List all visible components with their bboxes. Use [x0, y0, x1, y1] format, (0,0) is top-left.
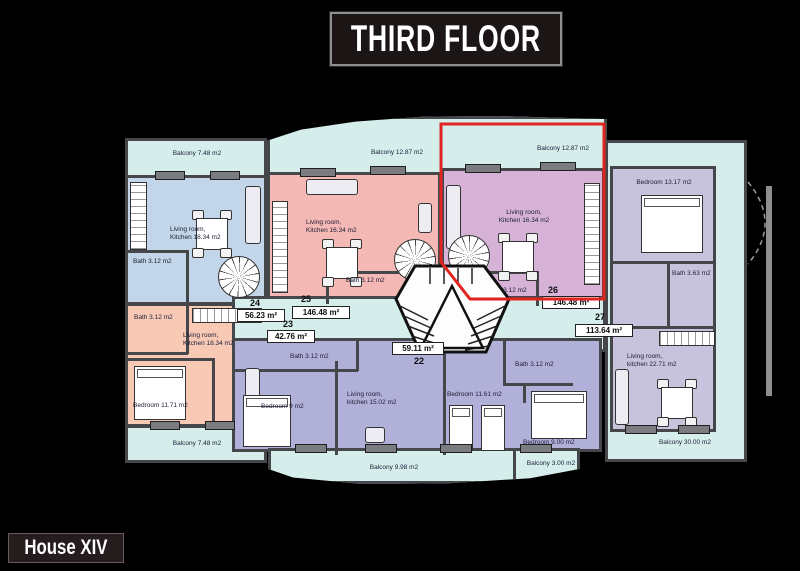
apartment-27-area: 113.64 m²	[575, 324, 633, 337]
window-stub	[365, 444, 397, 453]
sofa	[615, 369, 629, 425]
room-label-living-22: Living room, kitchen 15.02 m2	[347, 391, 427, 408]
chair	[220, 248, 232, 258]
room-label-bath2-27: Bath 3.12 m2	[515, 361, 554, 369]
window-stub	[205, 421, 235, 430]
window-stub	[678, 425, 710, 434]
interior-wall	[335, 361, 338, 455]
room-label-balcony-27b: Balcony 30.00 m2	[642, 439, 728, 447]
house-label-text: House XIV	[24, 536, 107, 560]
window-stub	[540, 162, 576, 171]
interior-wall	[186, 250, 189, 305]
dining-table	[655, 379, 699, 427]
window-stub	[625, 425, 657, 434]
window-stub	[300, 168, 336, 177]
bottom-balcony-strip: Balcony 9.98 m2 Balcony 3.00 m2	[268, 448, 580, 484]
room-label-bath-24: Bath 3.12 m2	[133, 258, 172, 266]
table-top	[326, 247, 358, 279]
interior-wall	[443, 351, 446, 455]
armchair	[365, 427, 385, 443]
kitchen-counter	[130, 182, 147, 250]
sofa	[306, 179, 358, 195]
window-stub	[210, 171, 240, 180]
room-label-balcony-26: Balcony 12.87 m2	[518, 145, 608, 153]
interior-wall	[667, 264, 670, 326]
interior-wall	[503, 383, 573, 386]
balcony-arc	[748, 182, 765, 264]
window-stub	[150, 421, 180, 430]
apartment-25-area: 146.48 m²	[292, 306, 350, 319]
bed	[134, 366, 186, 420]
room-label-balcony1-27: Balcony 3.00 m2	[521, 460, 581, 468]
chair	[657, 417, 669, 427]
sofa	[245, 186, 261, 244]
room-label-bedroom3-27: Bedroom 9.00 m2	[523, 439, 601, 447]
apartment-23-number[interactable]: 23	[283, 319, 293, 329]
apartment-25-number[interactable]: 25	[301, 294, 311, 304]
apartment-27-number[interactable]: 27	[595, 312, 605, 322]
kitchen-counter	[659, 331, 715, 346]
window-stub	[440, 444, 472, 453]
room-label-bedroom-23: Bedroom 11.71 m2	[133, 402, 213, 410]
room-label-balcony-24: Balcony 7.48 m2	[138, 150, 256, 158]
spiral-stair	[218, 256, 260, 298]
room-label-living-25: Living room, Kitchen 16.34 m2	[306, 219, 386, 236]
apartment-26-area: 146.48 m²	[542, 296, 600, 309]
room-label-bedroom2-27: Bedroom 11.61 m2	[447, 391, 525, 399]
room-label-bath-23: Bath 3.12 m2	[134, 314, 173, 322]
floor-title-text: THIRD FLOOR	[351, 18, 541, 60]
apartment-22-number[interactable]: 22	[414, 356, 424, 366]
interior-wall	[212, 358, 215, 428]
room-label-living-27: Living room, kitchen 22.71 m2	[627, 353, 709, 370]
double-bed	[531, 391, 587, 439]
double-bed	[641, 195, 703, 253]
apartment-24-area: 56.23 m²	[237, 309, 285, 322]
room-label-bath-25: Bath 3.12 m2	[346, 277, 385, 285]
room-label-living-23: Living room, Kitchen 18.34 m2	[183, 332, 259, 349]
apartment-24-balcony[interactable]: Balcony 7.48 m2	[125, 138, 267, 178]
chair	[322, 277, 334, 287]
window-stub	[465, 164, 501, 173]
apartment-24-number[interactable]: 24	[250, 298, 260, 308]
armchair	[418, 203, 432, 233]
apartment-23-area: 42.76 m²	[267, 330, 315, 343]
interior-wall	[356, 341, 359, 371]
floor-plan-page: THIRD FLOOR House XIV Balcony 7.48 m2 Li…	[0, 0, 800, 571]
interior-wall	[513, 451, 516, 481]
apartment-27-bath[interactable]: Bath 3.63 m2	[610, 261, 716, 329]
apartment-27-living[interactable]: Living room, kitchen 22.71 m2	[610, 326, 716, 432]
room-label-living-26: Living room, Kitchen 16.34 m2	[484, 209, 564, 226]
window-stub	[155, 171, 185, 180]
chair	[192, 248, 204, 258]
kitchen-counter	[272, 201, 288, 293]
room-label-bedroom1-27: Bedroom 13.17 m2	[621, 179, 707, 187]
table-top	[661, 387, 693, 419]
room-label-bath-22: Bath 3.12 m2	[290, 353, 329, 361]
house-label-box[interactable]: House XIV	[8, 533, 124, 563]
kitchen-counter	[584, 183, 600, 285]
chair	[526, 271, 538, 281]
single-bed	[481, 405, 505, 451]
interior-wall	[128, 358, 214, 361]
interior-wall	[128, 250, 188, 253]
apartment-27-bedroom1[interactable]: Bedroom 13.17 m2	[610, 166, 716, 264]
apartment-22-area: 59.11 m²	[392, 342, 444, 355]
room-label-bath1-27: Bath 3.63 m2	[672, 270, 711, 278]
floor-title-box: THIRD FLOOR	[330, 12, 562, 66]
room-label-living-24: Living room, Kitchen 18.34 m2	[170, 226, 246, 243]
apartment-24[interactable]: Living room, Kitchen 18.34 m2 Bath 3.12 …	[125, 175, 267, 305]
apartment-26-number[interactable]: 26	[548, 285, 558, 295]
room-label-balcony-23: Balcony 7.48 m2	[138, 440, 256, 448]
room-label-bedroom-22: Bedroom 9 m2	[261, 403, 333, 411]
terrace-rail	[766, 186, 772, 396]
window-stub	[370, 166, 406, 175]
room-label-balcony-22: Balcony 9.98 m2	[349, 464, 439, 472]
interior-wall	[128, 352, 188, 355]
room-label-balcony-25: Balcony 12.87 m2	[342, 149, 452, 157]
window-stub	[295, 444, 327, 453]
